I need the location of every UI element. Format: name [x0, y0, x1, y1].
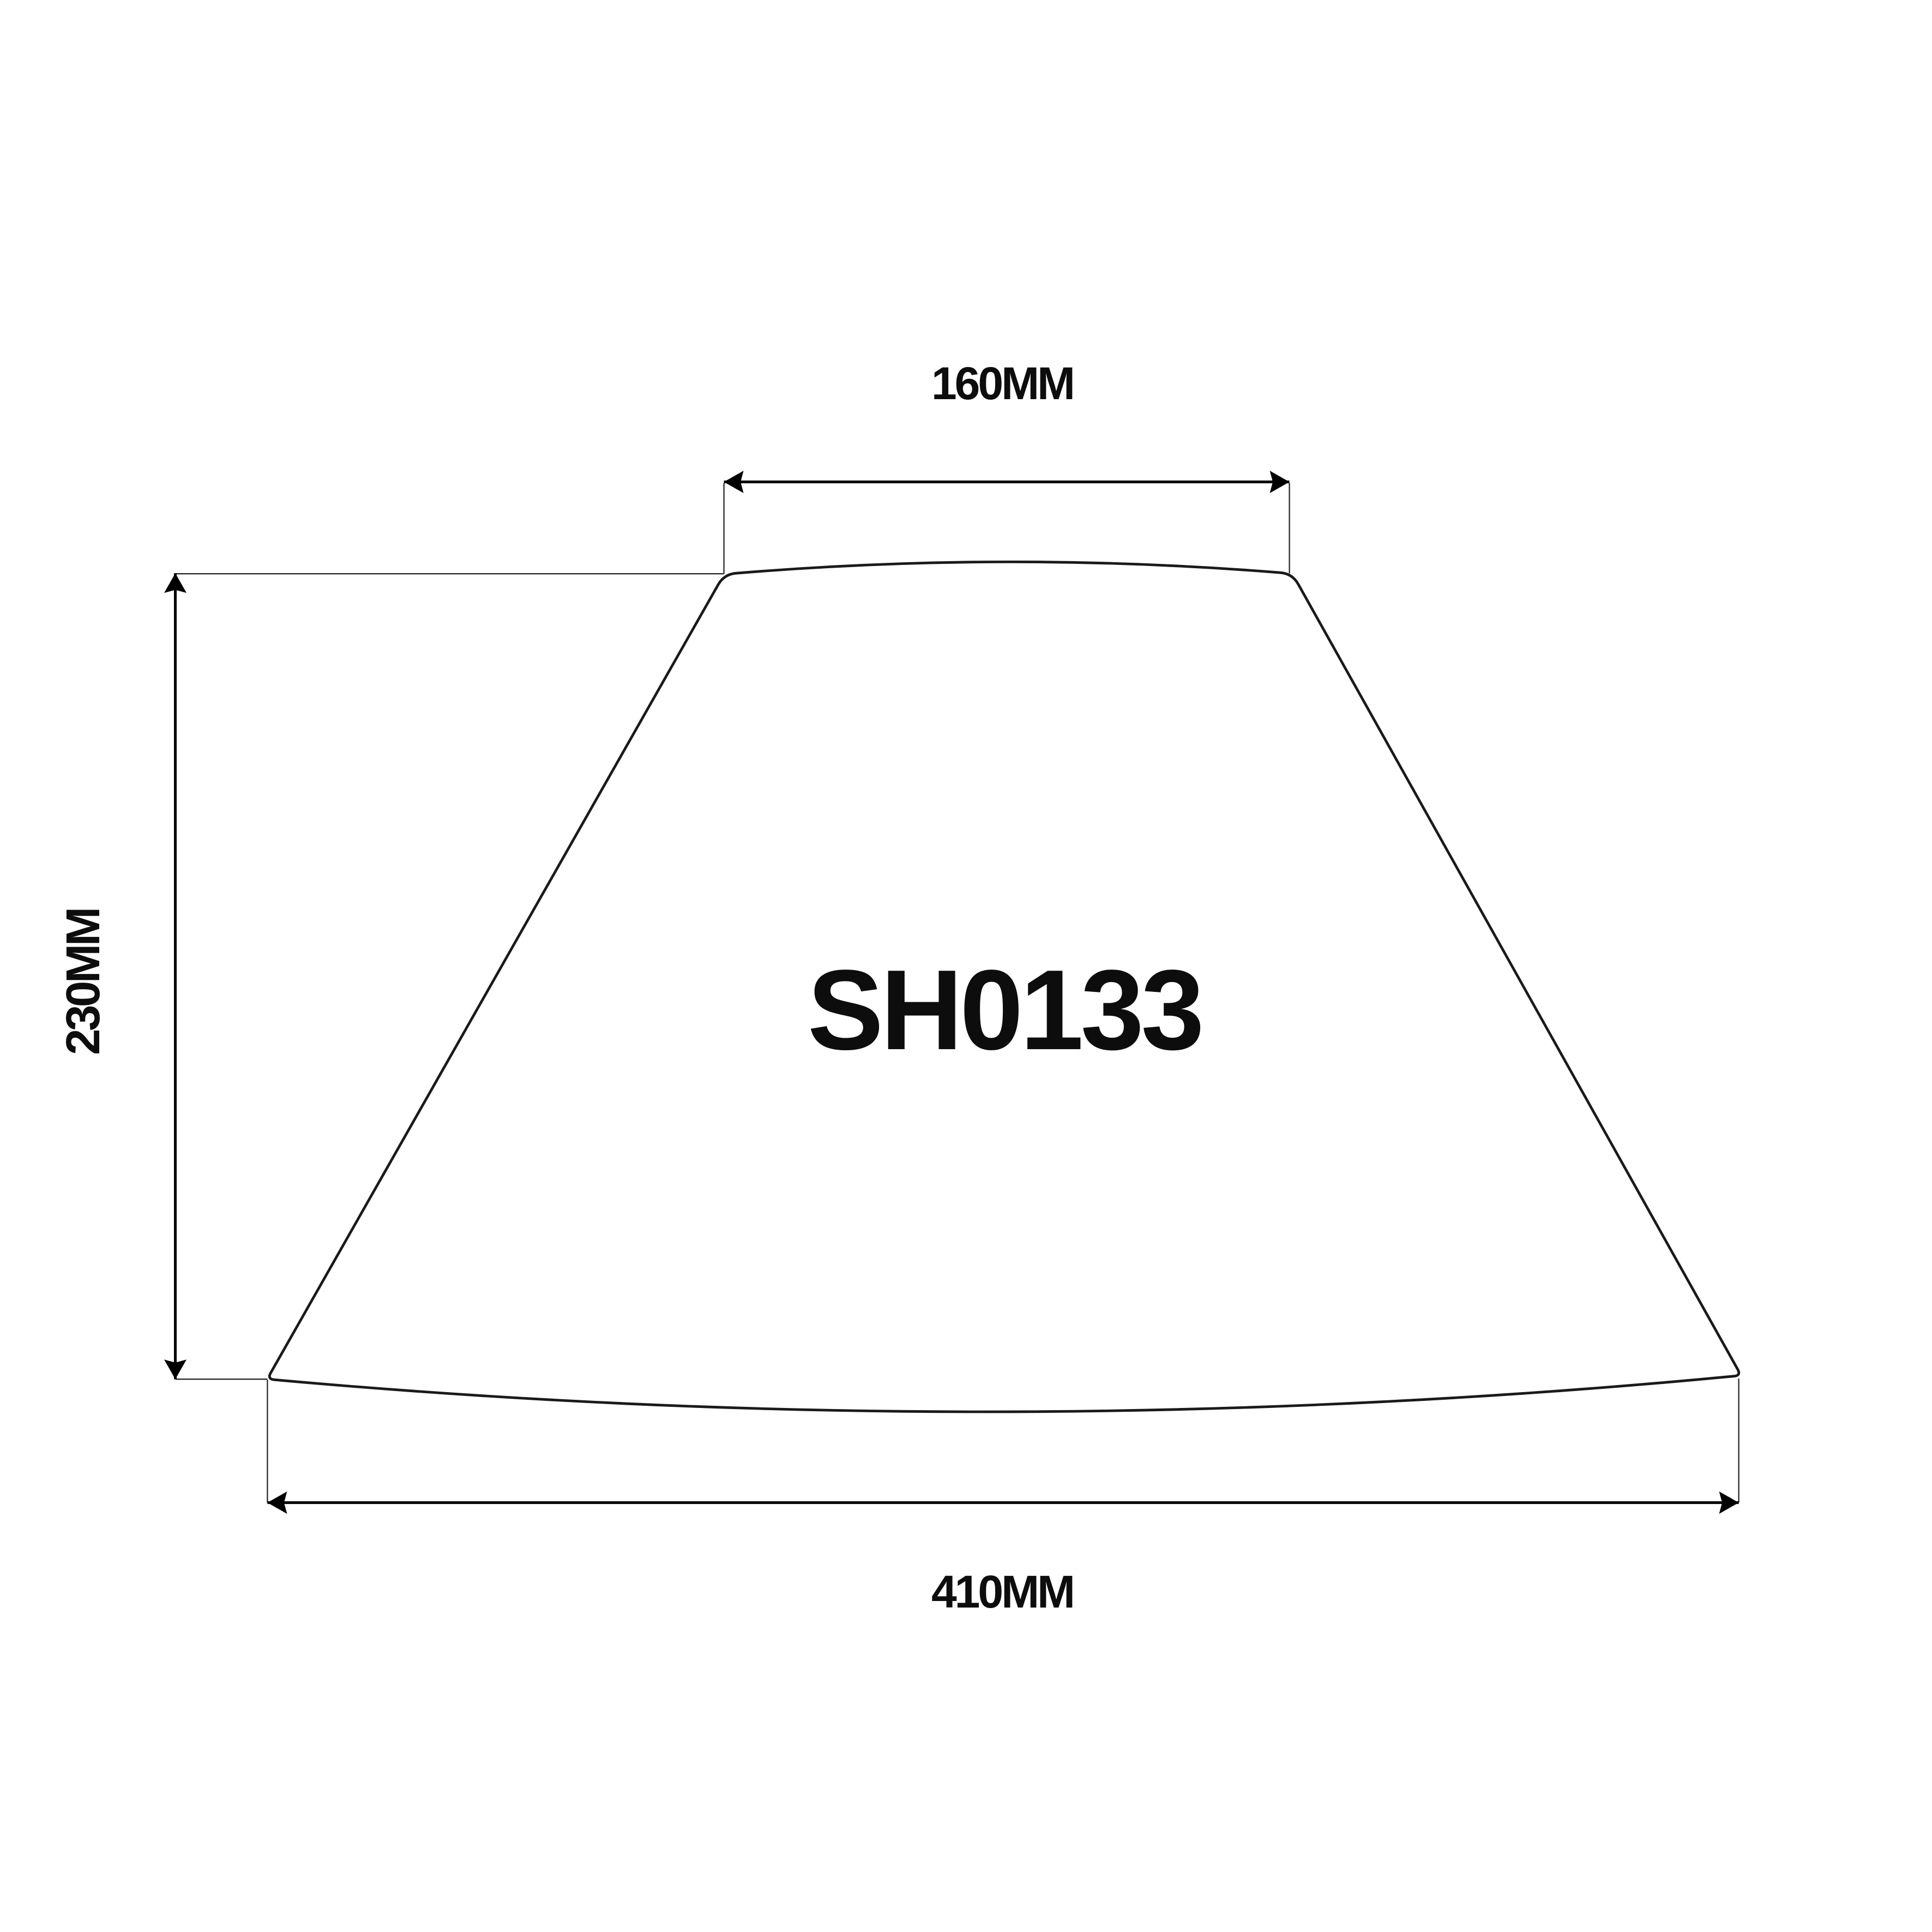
svg-text:410MM: 410MM — [931, 1566, 1073, 1617]
svg-text:SH0133: SH0133 — [808, 947, 1201, 1074]
svg-text:160MM: 160MM — [931, 358, 1073, 409]
svg-text:230MM: 230MM — [57, 909, 110, 1055]
